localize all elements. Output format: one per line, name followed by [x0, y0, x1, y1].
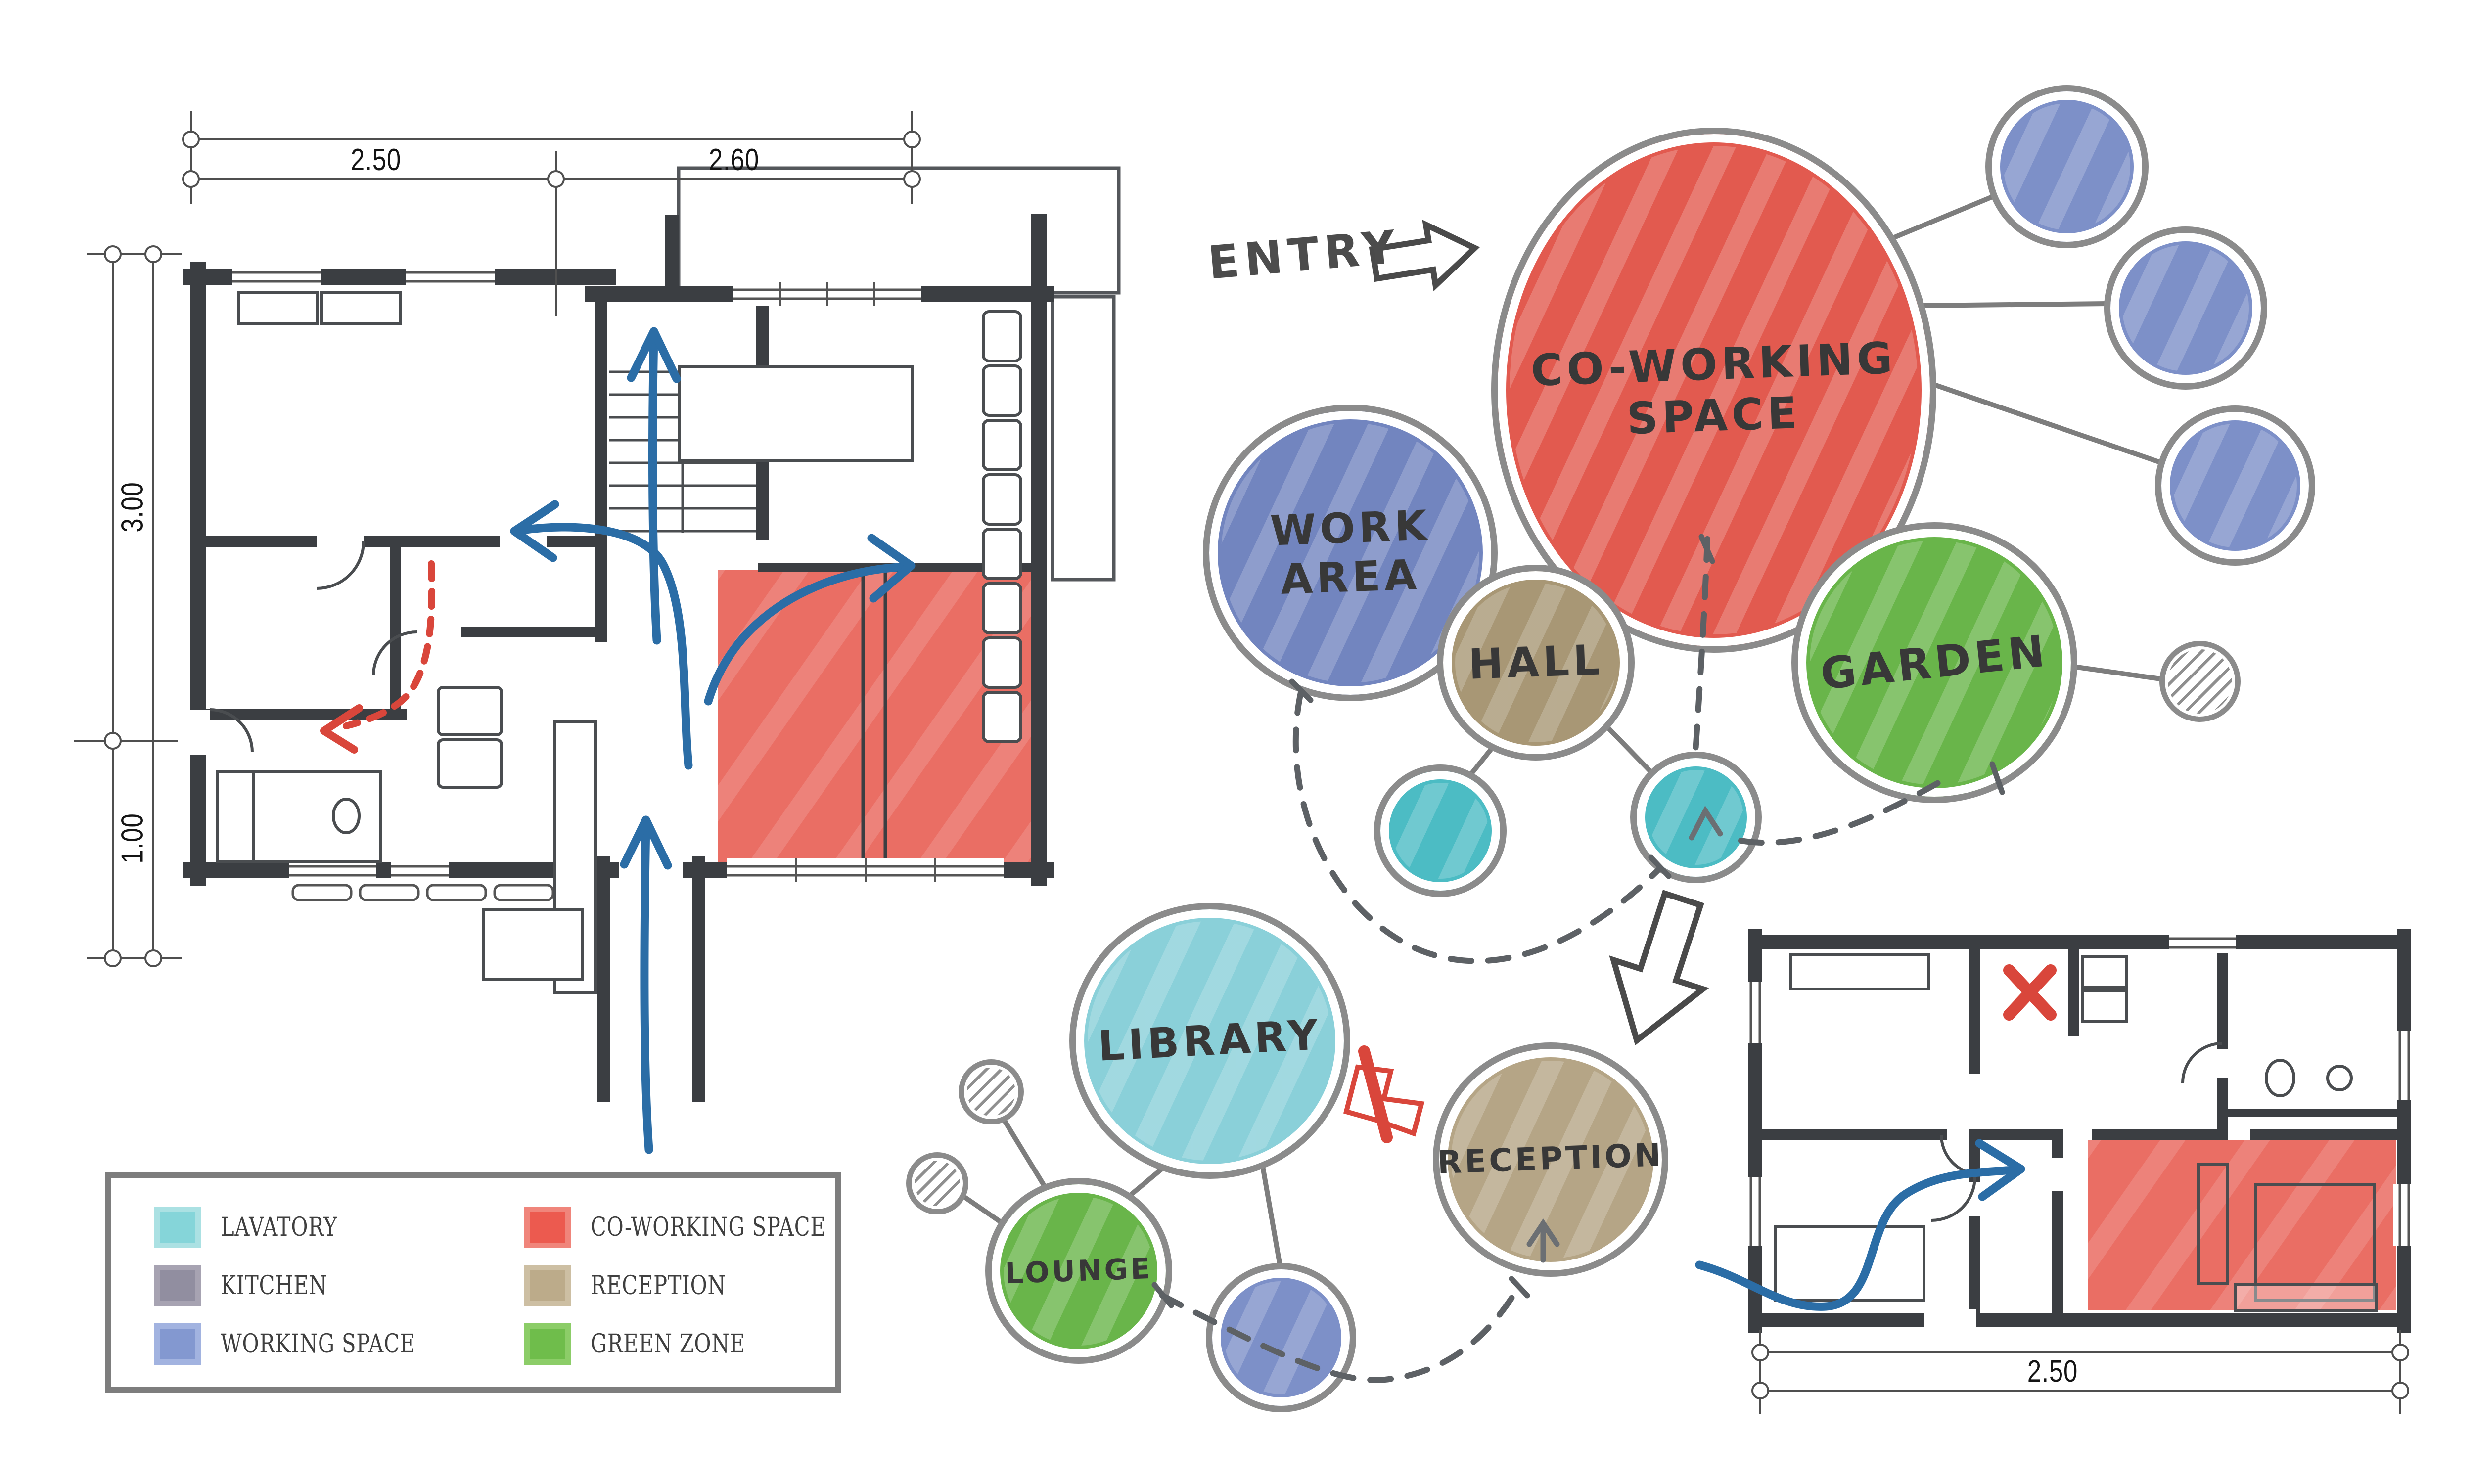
dim-left-plan-top-1: 2.50 — [335, 142, 416, 178]
legend-label-coworking-space: CO-WORKING SPACE — [591, 1213, 826, 1242]
to-left-rooms-arrow — [514, 504, 688, 765]
legend-label-green-zone: GREEN ZONE — [591, 1329, 745, 1359]
legend-label-lavatory: LAVATORY — [221, 1213, 337, 1242]
legend-label-reception: RECEPTION — [591, 1271, 726, 1301]
legend-swatch-lavatory — [154, 1207, 201, 1248]
bubble-work-area-label-line2: AREA — [1280, 550, 1421, 604]
dim-left-plan-side-2: 1.00 — [115, 798, 150, 879]
legend-item-working-space: WORKING SPACE — [154, 1315, 524, 1373]
corridor-entry-arrow — [624, 820, 668, 1150]
legend-label-working-space: WORKING SPACE — [221, 1329, 415, 1359]
reception-up-arrow-icon — [1529, 1223, 1557, 1260]
to-coworking-curved-arrow — [708, 538, 911, 701]
denied-connection-icon — [1346, 1051, 1421, 1137]
denied-x-icon — [2009, 970, 2051, 1015]
legend-item-green-zone: GREEN ZONE — [524, 1315, 884, 1373]
bubble-work-area-label-line1: WORK — [1269, 501, 1431, 555]
blue-flow-arrows — [514, 331, 2021, 1306]
legend-swatch-kitchen — [154, 1265, 201, 1306]
legend-swatch-reception — [524, 1265, 571, 1306]
legend-item-reception: RECEPTION — [524, 1257, 884, 1315]
legend-item-kitchen: KITCHEN — [154, 1257, 524, 1315]
legend-swatch-green-zone — [524, 1323, 571, 1365]
legend-item-lavatory: LAVATORY — [154, 1198, 524, 1257]
dim-right-plan-bottom: 2.50 — [2012, 1354, 2093, 1389]
bubble-lounge-label: LOUNGE — [1005, 1252, 1153, 1291]
bubble-coworking-label-line2: SPACE — [1626, 387, 1802, 445]
red-dashed-flow-arrow — [324, 564, 432, 750]
bubble-hall-label: HALL — [1467, 636, 1604, 690]
concept-diagram-canvas: CO-WORKING SPACE WORK AREA HALL GARDEN L… — [0, 0, 2473, 1484]
legend-swatch-working-space — [154, 1323, 201, 1365]
legend-label-kitchen: KITCHEN — [221, 1271, 327, 1301]
right-plan-entry-arrow — [1699, 1143, 2021, 1306]
legend-item-coworking-space: CO-WORKING SPACE — [524, 1198, 884, 1257]
legend: LAVATORY KITCHEN WORKING SPACE CO-WORKIN… — [105, 1172, 841, 1393]
legend-swatch-coworking-space — [524, 1207, 571, 1248]
dim-left-plan-top-2: 2.60 — [693, 142, 775, 178]
dim-left-plan-side-1: 3.00 — [115, 467, 150, 548]
chevron-marks — [1529, 811, 1720, 1260]
teal-circle-chevron-icon — [1692, 811, 1720, 838]
